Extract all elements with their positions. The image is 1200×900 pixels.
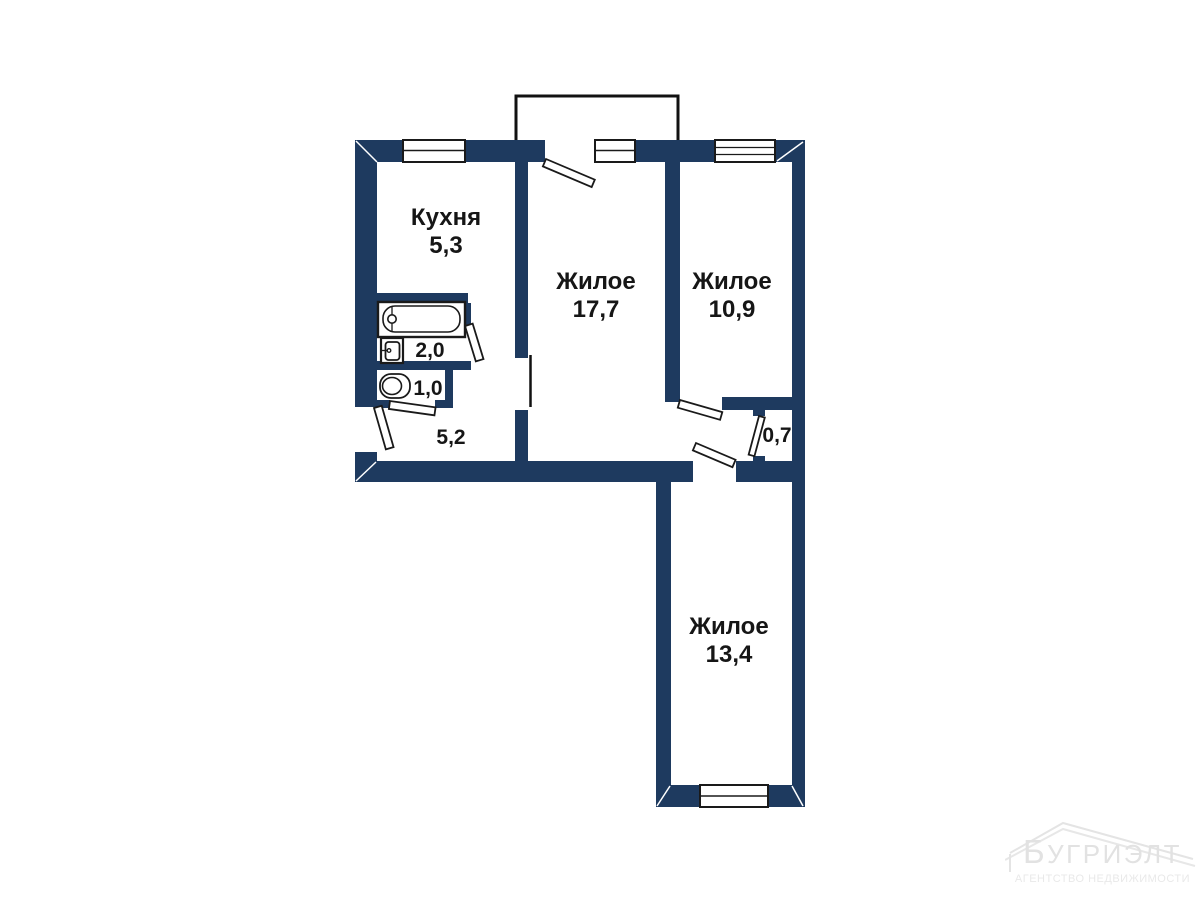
floor-plan-drawing: [0, 0, 1200, 900]
room-name-living-main: Жилое: [556, 268, 635, 296]
room-name-living-right: Жилое: [692, 268, 771, 296]
room-area-living-main: 17,7: [573, 296, 620, 324]
room-label-living-bottom: Жилое 13,4: [689, 613, 768, 669]
balcony-door-leaf: [543, 159, 595, 187]
wall-hall-bottom: [355, 461, 693, 482]
balcony-outline: [516, 96, 678, 140]
room-area-bathroom: 2,0: [415, 339, 444, 363]
room-area-toilet: 1,0: [413, 377, 442, 401]
room-name-kitchen: Кухня: [411, 204, 481, 232]
wall-toilet-bottom-right: [435, 400, 453, 408]
wall-kitchen-divider-lower: [515, 410, 528, 461]
wall-rooms-divider: [665, 162, 680, 402]
wall-toilet-right: [445, 370, 453, 400]
agency-watermark: БУГРИЭЛТ АГЕНТСТВО НЕДВИЖИМОСТИ: [1005, 815, 1200, 895]
room-area-living-right: 10,9: [709, 296, 756, 324]
living-main-window: [595, 140, 635, 162]
wall-left-upper: [355, 140, 377, 407]
wall-room109-bottom: [722, 397, 792, 410]
living-right-window: [715, 140, 775, 162]
room-label-living-main: Жилое 17,7: [556, 268, 635, 324]
watermark-brand: БУГРИЭЛТ: [1005, 839, 1200, 867]
wall-right: [792, 140, 805, 807]
wall-room134-left: [656, 482, 671, 807]
room-area-kitchen: 5,3: [429, 232, 462, 260]
room-label-living-right: Жилое 10,9: [692, 268, 771, 324]
entrance-door-leaf: [374, 406, 394, 450]
living-bottom-window: [700, 785, 768, 807]
sink: [380, 338, 403, 363]
floorplan-page: Кухня 5,3 Жилое 17,7 Жилое 10,9 Жилое 13…: [0, 0, 1200, 900]
room-label-kitchen: Кухня 5,3: [411, 204, 481, 260]
watermark-tagline: АГЕНТСТВО НЕДВИЖИМОСТИ: [1005, 873, 1200, 886]
bathtub: [378, 302, 465, 337]
kitchen-window: [403, 140, 465, 162]
bathroom-door-leaf: [465, 324, 483, 362]
toilet-door-leaf: [389, 401, 436, 415]
living-bottom-door-leaf: [693, 443, 736, 467]
wall-kitchen-divider-upper: [515, 162, 528, 358]
wall-top-2: [465, 140, 545, 162]
room-area-hallway: 5,2: [436, 426, 465, 450]
toilet: [380, 374, 410, 398]
living-right-door-leaf: [678, 400, 723, 420]
wall-top-3: [635, 140, 715, 162]
room-area-closet: 0,7: [762, 424, 791, 448]
room-area-living-bottom: 13,4: [706, 641, 753, 669]
room-name-living-bottom: Жилое: [689, 613, 768, 641]
